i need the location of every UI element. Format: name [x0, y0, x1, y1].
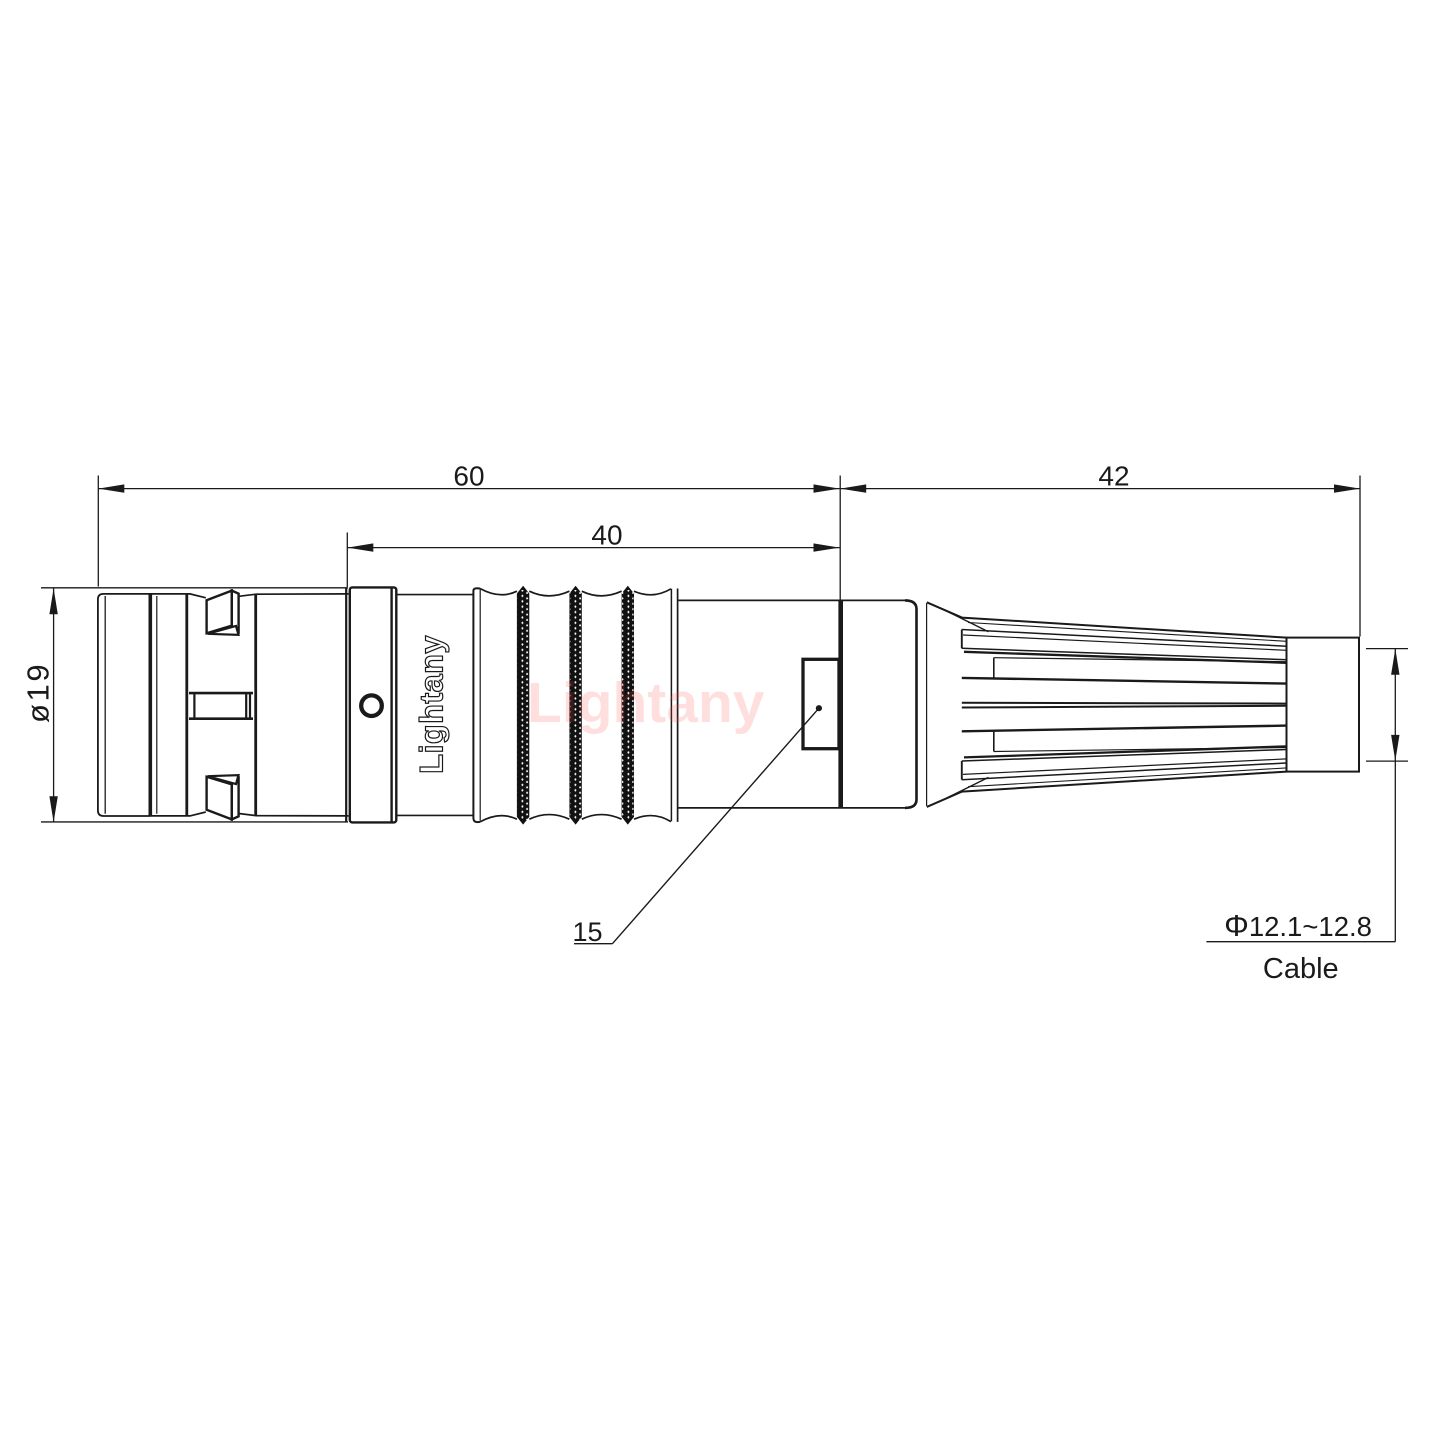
svg-text:Lightany: Lightany	[527, 671, 765, 735]
svg-text:Φ12.1~12.8: Φ12.1~12.8	[1224, 908, 1372, 943]
svg-text:Cable: Cable	[1263, 953, 1339, 985]
svg-text:60: 60	[453, 461, 484, 492]
svg-text:42: 42	[1098, 461, 1129, 492]
svg-text:15: 15	[572, 917, 602, 947]
svg-text:Lightany: Lightany	[414, 635, 450, 774]
svg-text:ø19: ø19	[21, 662, 56, 723]
svg-text:40: 40	[591, 520, 622, 551]
